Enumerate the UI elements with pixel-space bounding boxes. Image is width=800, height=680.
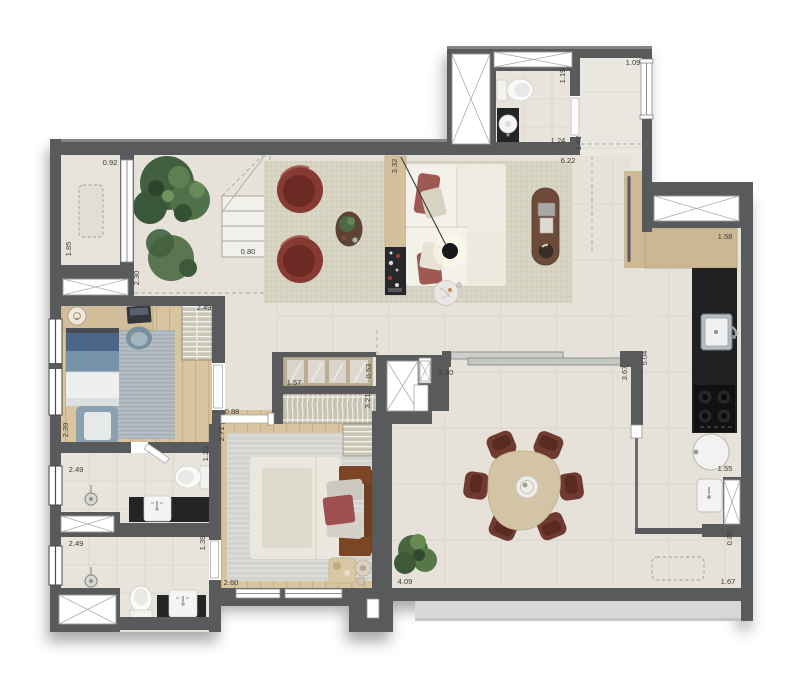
svg-text:4.09: 4.09 <box>398 577 413 586</box>
svg-text:0.80: 0.80 <box>241 247 256 256</box>
svg-text:1.09: 1.09 <box>626 58 641 67</box>
svg-text:3.21: 3.21 <box>363 394 372 409</box>
svg-text:2.49: 2.49 <box>69 539 84 548</box>
svg-text:1.57: 1.57 <box>287 378 302 387</box>
svg-text:2.60: 2.60 <box>224 578 239 587</box>
svg-text:0.92: 0.92 <box>103 158 118 167</box>
svg-text:6.22: 6.22 <box>561 156 576 165</box>
svg-text:2.49: 2.49 <box>197 303 212 312</box>
svg-text:1.39: 1.39 <box>198 536 207 551</box>
svg-text:2.49: 2.49 <box>69 465 84 474</box>
svg-text:1.55: 1.55 <box>718 464 733 473</box>
svg-text:5.04: 5.04 <box>640 351 649 366</box>
svg-text:2.39: 2.39 <box>61 423 70 438</box>
svg-text:0.88: 0.88 <box>225 407 240 416</box>
svg-text:1.42: 1.42 <box>574 136 583 151</box>
svg-text:1.58: 1.58 <box>718 232 733 241</box>
svg-text:3.30: 3.30 <box>439 368 454 377</box>
svg-text:1.85: 1.85 <box>64 242 73 257</box>
svg-text:1.19: 1.19 <box>558 69 567 84</box>
svg-text:0.53: 0.53 <box>364 364 373 379</box>
svg-text:3.32: 3.32 <box>390 159 399 174</box>
svg-text:1.20: 1.20 <box>201 447 210 462</box>
svg-text:3.67: 3.67 <box>620 366 629 381</box>
svg-text:2.71: 2.71 <box>217 427 226 442</box>
svg-text:0.85: 0.85 <box>725 531 734 546</box>
svg-text:2.30: 2.30 <box>132 271 141 286</box>
svg-text:1.67: 1.67 <box>721 577 736 586</box>
svg-text:1.24: 1.24 <box>551 136 566 145</box>
